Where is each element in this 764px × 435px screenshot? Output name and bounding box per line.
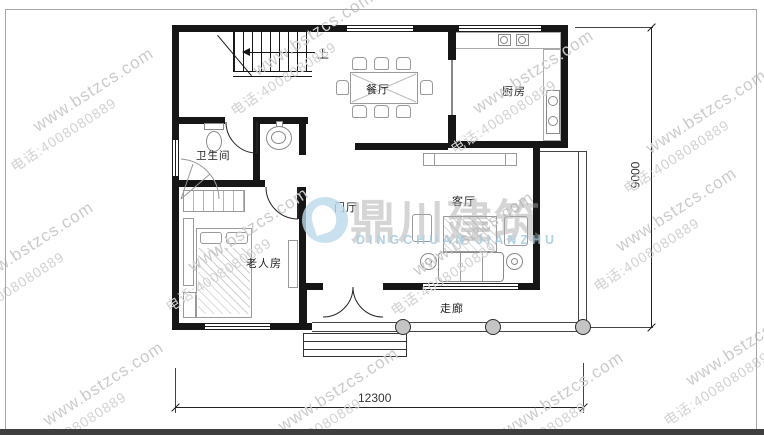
coffee-table-rug [443,216,497,252]
dim-height-value: 9000 [628,162,642,189]
entrance-double-door [322,286,384,320]
watermark-phone-text: 电话:4008080889 [590,213,704,297]
dim-line-vertical [651,27,652,327]
watermark-site-text: www.bstzcs.com [40,338,168,431]
wall [533,148,540,283]
watermark-phone-text: 电话:4008080889 [660,347,764,431]
tv-cabinet [423,153,517,166]
column [575,319,591,335]
watermark-phone-text: 电话:4008080889 [17,387,131,435]
armchair [412,214,432,242]
watermark-site-text: www.bstzcs.com [643,66,764,159]
kitchen-sink-drain [500,36,508,44]
tv-cabinet-end [505,153,517,166]
room-label-dining: 餐厅 [366,81,390,97]
tv-cabinet-end [423,153,435,166]
wall [518,283,540,290]
window-kitchen [459,25,541,32]
pillow [226,232,248,244]
wall [448,141,561,148]
dim-width-value: 12300 [358,391,391,405]
window-dining [347,25,413,32]
veranda-line [578,151,579,331]
dining-chair [374,105,389,118]
watermark-site-text: www.bstzcs.com [275,344,403,435]
wall [448,32,456,60]
watermark-phone-text: 电话:4008080889 [0,247,68,331]
toilet-tank [204,123,224,130]
side-plant-inner [425,258,432,265]
column [485,319,501,335]
wall [172,176,179,330]
dining-chair [352,105,367,118]
sofa-cushion-line [460,253,461,281]
kitchen-sink-drain [518,36,526,44]
room-label-corridor: 走廊 [440,300,464,316]
bedroom-door [265,185,301,221]
kitchen-opening-line [451,60,453,115]
washbasin-tap [276,121,283,127]
wall [561,32,568,148]
dining-chair [374,57,389,70]
stove-burner [548,96,558,106]
dining-chair [396,57,411,70]
shower-fan [180,157,220,201]
watermark-site-text: www.bstzcs.com [500,348,628,435]
column [395,319,411,335]
wall [383,283,423,290]
dresser [183,218,194,286]
veranda-line [540,151,586,152]
wall [172,323,205,330]
watermark-phone-text: 电话:4008080889 [7,93,121,177]
wall [299,124,306,155]
wall [448,115,456,141]
veranda-line [312,322,588,323]
bedroom-cabinet [288,240,298,288]
wall [355,143,448,150]
room-label-bathroom: 卫生间 [196,148,231,163]
wall [172,25,347,32]
room-label-kitchen: 厨房 [502,83,526,99]
side-plant-inner [511,258,518,265]
window-living [423,283,518,290]
photo-bottom-edge [0,429,764,435]
wall [413,25,459,32]
room-label-foyer: 门厅 [334,199,358,215]
pillow [200,232,222,244]
wall [541,25,568,32]
stair-direction-arrow [249,52,315,53]
sofa-cushion-line [482,253,483,281]
sofa [438,252,504,282]
veranda-line [312,331,588,332]
window-bathroom [172,140,179,176]
room-label-living: 客厅 [452,193,476,209]
wall [299,283,307,330]
dim-extension-line [575,27,653,28]
window-bedroom [205,323,270,330]
stair-arrowhead-icon [242,48,250,56]
dining-chair [396,105,411,118]
stair-edge [233,71,312,77]
armchair [504,216,528,246]
dining-chair [336,80,349,95]
dim-extension-line [590,327,653,328]
dining-chair [420,80,433,95]
stair-up-label: 上 [317,45,329,62]
room-label-bedroom: 老人房 [246,255,282,271]
dim-line-horizontal [175,407,584,408]
dining-chair [352,57,367,70]
washbasin-inner [271,131,286,144]
watermark-site-text: www.bstzcs.com [683,298,764,391]
bedside-table [183,292,196,318]
bed-blanket [198,248,250,314]
stove-burner [548,116,558,126]
watermark-site-text: www.bstzcs.com [30,44,158,137]
veranda-line [586,151,587,331]
entrance-steps [303,333,407,357]
floorplan-image: 上 [0,0,764,435]
watermark-site-text: www.bstzcs.com [0,198,98,291]
